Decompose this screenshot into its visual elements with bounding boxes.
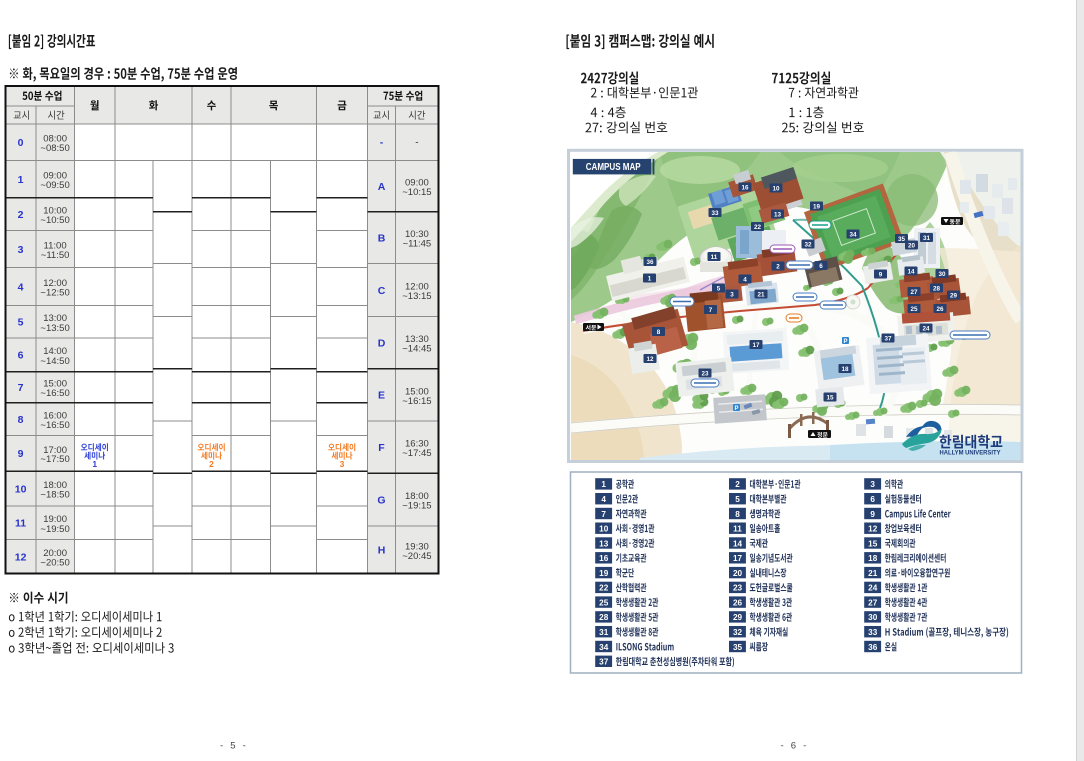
svg-text:31: 31 <box>923 235 931 242</box>
svg-text:37: 37 <box>599 658 609 667</box>
svg-text:35: 35 <box>898 236 906 243</box>
svg-text:2: 2 <box>735 480 740 489</box>
svg-text:~17:50: ~17:50 <box>40 454 69 465</box>
svg-text:- 6 -: - 6 - <box>781 741 809 752</box>
svg-text:1: 1 <box>601 480 606 489</box>
svg-text:B: B <box>378 232 386 244</box>
svg-text:34: 34 <box>599 643 609 652</box>
svg-text:8: 8 <box>18 414 24 426</box>
svg-text:21: 21 <box>757 291 765 298</box>
svg-text:23: 23 <box>733 584 743 593</box>
svg-text:5: 5 <box>717 285 721 292</box>
svg-text:~16:15: ~16:15 <box>402 396 431 407</box>
svg-text:7: 7 <box>709 307 713 314</box>
svg-text:24: 24 <box>922 325 930 332</box>
svg-text:G: G <box>377 494 385 506</box>
svg-text:18: 18 <box>868 554 878 563</box>
svg-text:~20:50: ~20:50 <box>40 558 69 569</box>
svg-text:31: 31 <box>599 628 609 637</box>
svg-text:5: 5 <box>735 495 740 504</box>
svg-text:3: 3 <box>870 480 875 489</box>
svg-text:9: 9 <box>870 510 875 519</box>
svg-text:3: 3 <box>730 291 734 298</box>
svg-text:15: 15 <box>826 394 834 401</box>
svg-text:1: 1 <box>648 275 652 282</box>
svg-text:A: A <box>378 181 386 193</box>
svg-text:4: 4 <box>743 276 747 283</box>
svg-text:13: 13 <box>774 211 782 218</box>
svg-text:~17:45: ~17:45 <box>402 448 431 459</box>
svg-text:37: 37 <box>884 335 892 342</box>
svg-text:34: 34 <box>849 231 857 238</box>
svg-text:HALLYM UNIVERSITY: HALLYM UNIVERSITY <box>940 449 1002 456</box>
svg-text:H: H <box>378 545 386 557</box>
svg-text:C: C <box>378 285 386 297</box>
svg-text:~11:50: ~11:50 <box>41 250 70 261</box>
svg-text:10: 10 <box>599 525 609 534</box>
svg-text:6: 6 <box>819 263 823 270</box>
svg-text:-: - <box>415 137 418 148</box>
svg-text:~12:50: ~12:50 <box>40 288 69 299</box>
svg-text:~19:15: ~19:15 <box>402 501 431 512</box>
svg-text:~14:45: ~14:45 <box>402 344 431 355</box>
svg-text:8: 8 <box>657 329 661 336</box>
svg-text:36: 36 <box>868 643 878 652</box>
svg-text:P: P <box>843 339 847 345</box>
svg-text:7: 7 <box>18 382 24 394</box>
svg-text:16: 16 <box>599 554 609 563</box>
svg-text:~08:50: ~08:50 <box>40 143 69 154</box>
svg-text:28: 28 <box>599 613 609 622</box>
svg-text:25: 25 <box>599 598 609 607</box>
svg-text:12: 12 <box>15 551 27 563</box>
svg-text:4: 4 <box>601 495 606 504</box>
svg-text:36: 36 <box>646 259 654 266</box>
svg-text:33: 33 <box>711 210 719 217</box>
svg-text:2: 2 <box>209 459 214 469</box>
svg-text:D: D <box>378 338 386 350</box>
svg-text:~10:50: ~10:50 <box>40 215 69 226</box>
svg-text:30: 30 <box>938 271 946 278</box>
svg-text:28: 28 <box>933 285 941 292</box>
svg-text:6: 6 <box>870 495 875 504</box>
svg-text:5: 5 <box>18 317 24 329</box>
svg-text:F: F <box>378 442 385 454</box>
svg-text:14: 14 <box>733 539 743 548</box>
svg-text:13: 13 <box>599 539 609 548</box>
svg-text:~13:15: ~13:15 <box>402 291 431 302</box>
svg-text:33: 33 <box>868 628 878 637</box>
svg-text:E: E <box>378 390 385 402</box>
svg-text:11: 11 <box>733 525 742 534</box>
svg-text:30: 30 <box>868 613 878 622</box>
svg-text:25: 25 <box>910 306 918 313</box>
svg-text:27: 27 <box>910 289 918 296</box>
svg-text:19: 19 <box>599 569 609 578</box>
svg-text:~20:45: ~20:45 <box>402 551 431 562</box>
svg-text:1: 1 <box>92 459 97 469</box>
svg-text:20: 20 <box>908 242 916 249</box>
svg-text:7: 7 <box>601 510 606 519</box>
svg-text:35: 35 <box>733 643 743 652</box>
svg-text:2: 2 <box>18 209 24 221</box>
svg-text:29: 29 <box>950 292 958 299</box>
svg-text:24: 24 <box>868 584 878 593</box>
svg-text:19: 19 <box>813 203 821 210</box>
svg-text:4: 4 <box>18 281 24 293</box>
svg-text:~11:45: ~11:45 <box>403 239 432 250</box>
svg-text:0: 0 <box>18 137 24 149</box>
svg-text:~16:50: ~16:50 <box>40 388 69 399</box>
svg-text:2: 2 <box>776 263 780 270</box>
svg-text:CAMPUS MAP: CAMPUS MAP <box>586 161 641 173</box>
svg-text:10: 10 <box>15 483 27 495</box>
svg-text:23: 23 <box>701 370 709 377</box>
svg-text:32: 32 <box>804 241 812 248</box>
svg-text:29: 29 <box>733 613 743 622</box>
svg-text:~16:50: ~16:50 <box>40 420 69 431</box>
svg-text:22: 22 <box>754 224 762 231</box>
svg-text:~09:50: ~09:50 <box>40 180 69 191</box>
svg-text:11: 11 <box>711 254 718 261</box>
svg-text:12: 12 <box>868 525 878 534</box>
svg-text:17: 17 <box>752 342 760 349</box>
svg-text:10: 10 <box>772 185 780 192</box>
svg-text:3: 3 <box>18 244 24 256</box>
svg-text:22: 22 <box>599 584 609 593</box>
svg-text:21: 21 <box>868 569 878 578</box>
svg-text:9: 9 <box>18 448 24 460</box>
svg-text:14: 14 <box>907 268 915 275</box>
svg-text:9: 9 <box>879 271 883 278</box>
svg-text:-: - <box>380 137 383 148</box>
svg-text:20: 20 <box>733 569 743 578</box>
svg-text:17: 17 <box>733 554 743 563</box>
svg-text:32: 32 <box>733 628 743 637</box>
svg-text:~10:15: ~10:15 <box>402 187 431 198</box>
svg-text:18: 18 <box>841 366 849 373</box>
svg-text:1: 1 <box>18 174 24 186</box>
svg-text:27: 27 <box>868 598 878 607</box>
svg-text:~13:50: ~13:50 <box>40 323 69 334</box>
svg-text:P: P <box>734 406 738 412</box>
svg-text:16: 16 <box>741 184 749 191</box>
svg-text:~18:50: ~18:50 <box>40 490 69 501</box>
svg-text:26: 26 <box>936 306 944 313</box>
svg-text:~14:50: ~14:50 <box>40 356 69 367</box>
svg-text:~19:50: ~19:50 <box>40 524 69 535</box>
svg-text:- 5 -: - 5 - <box>220 741 248 752</box>
svg-text:15: 15 <box>868 539 878 548</box>
svg-text:8: 8 <box>735 510 740 519</box>
svg-text:12: 12 <box>646 356 654 363</box>
svg-text:6: 6 <box>18 350 24 362</box>
svg-text:3: 3 <box>340 459 345 469</box>
svg-text:11: 11 <box>15 518 26 530</box>
svg-text:26: 26 <box>733 598 743 607</box>
